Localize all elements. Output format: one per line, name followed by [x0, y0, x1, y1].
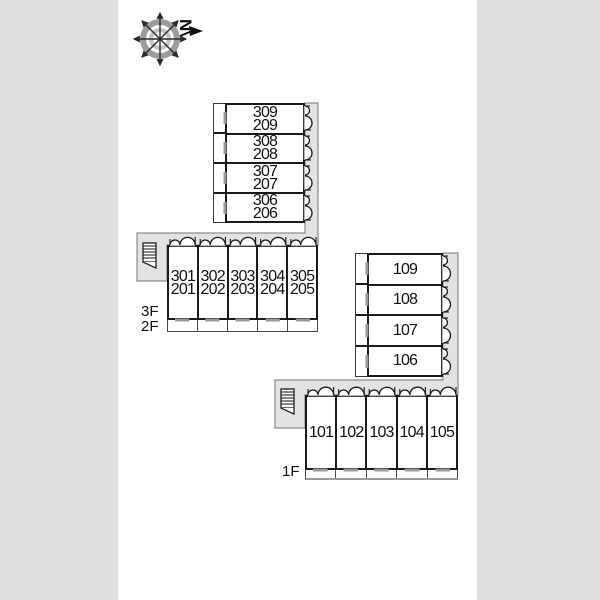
- room-cell: 309 209: [227, 105, 303, 135]
- room-cell: 305 205: [288, 247, 316, 318]
- room-number: 302 202: [201, 270, 225, 296]
- room-number: 309 209: [253, 106, 277, 132]
- room-number: 105: [430, 426, 454, 439]
- room-cell: 301 201: [169, 247, 199, 318]
- first-floor-room-stack: 109 108 107 106: [355, 253, 443, 377]
- room-cell: 308 208: [227, 135, 303, 165]
- room-number: 301 201: [171, 270, 195, 296]
- room-cell: 304 204: [258, 247, 288, 318]
- room-cell: 109: [369, 255, 441, 286]
- room-number: 109: [393, 263, 417, 276]
- room-number: 104: [400, 426, 424, 439]
- balcony-strip: [355, 253, 367, 377]
- room-cell: 103: [367, 397, 397, 468]
- room-cell: 108: [369, 286, 441, 317]
- room-cell: 302 202: [199, 247, 229, 318]
- upper-floors-room-stack: 309 209 308 208 307 207 306 206: [213, 103, 305, 223]
- floor-label-1f: 1F: [282, 463, 300, 480]
- room-cell: 107: [369, 316, 441, 347]
- room-number: 102: [339, 426, 363, 439]
- room-cell: 303 203: [229, 247, 259, 318]
- compass-rose-icon: N: [128, 6, 208, 72]
- floor-label-2f: 2F: [141, 318, 159, 335]
- first-floor-room-row: 101 102 103 104 105: [305, 395, 458, 480]
- balcony-strip: [213, 103, 225, 223]
- room-cell: 104: [398, 397, 428, 468]
- room-cell: 105: [428, 397, 456, 468]
- balcony-strip: [167, 320, 318, 332]
- room-number: 303 203: [230, 270, 254, 296]
- room-number: 306 206: [253, 194, 277, 220]
- room-number: 108: [393, 293, 417, 306]
- room-number: 305 205: [290, 270, 314, 296]
- room-number: 103: [369, 426, 393, 439]
- room-number: 304 204: [260, 270, 284, 296]
- room-number: 307 207: [253, 165, 277, 191]
- room-number: 308 208: [253, 135, 277, 161]
- upper-floors-room-row: 301 201 302 202 303 203 304 204 305 205: [167, 245, 318, 332]
- room-cell: 102: [337, 397, 367, 468]
- room-cell: 106: [369, 347, 441, 376]
- room-number: 106: [393, 354, 417, 367]
- room-number: 101: [309, 426, 333, 439]
- room-cell: 306 206: [227, 194, 303, 222]
- balcony-strip: [305, 470, 458, 480]
- room-cell: 101: [307, 397, 337, 468]
- room-cell: 307 207: [227, 164, 303, 194]
- room-number: 107: [393, 324, 417, 337]
